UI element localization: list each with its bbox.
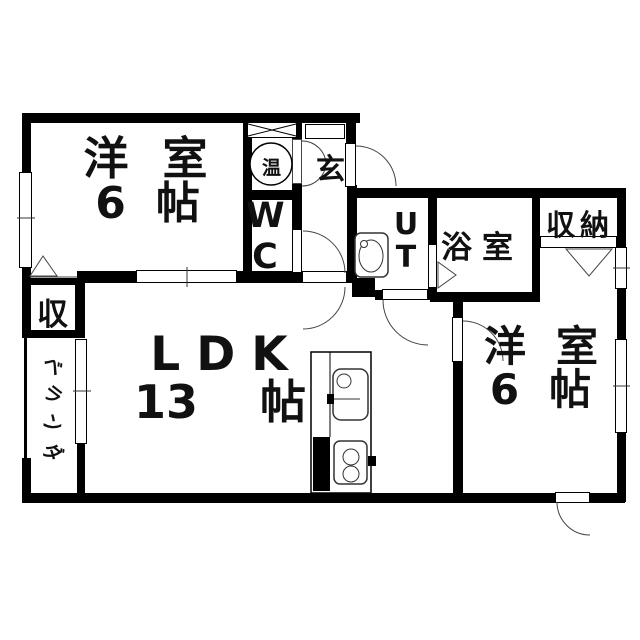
wall-top — [22, 113, 360, 123]
closet-right-door-icon — [566, 249, 612, 276]
door-bedroom2-bottom-panel — [555, 492, 590, 503]
wall-bath-closet-divider — [532, 188, 540, 302]
closet-right-label: 収納 — [546, 202, 614, 244]
closet-left-label: 収 — [37, 289, 68, 334]
kitchen-stove-icon — [334, 441, 367, 484]
wall-veranda-right — [77, 443, 85, 502]
wall-bedroom2-top — [430, 292, 540, 302]
door-wc-panel — [292, 229, 302, 273]
wc-door-arc-icon — [303, 231, 345, 273]
wall-closet-left-top — [30, 278, 77, 285]
bathroom-label: 浴室 — [441, 222, 523, 267]
bedroom-left-label: 洋室 6帖 — [45, 136, 250, 227]
ldk-label: LDK 13帖 — [110, 331, 330, 426]
shoe-cabinet — [247, 122, 297, 138]
sliding-door-bedroom1-ldk — [136, 270, 237, 283]
wall-bottom — [22, 493, 625, 503]
entrance-label: 玄 — [316, 146, 345, 188]
veranda-railing — [24, 336, 27, 460]
door-hall-ldk-panel — [302, 271, 347, 283]
door-ut-panel — [382, 289, 428, 300]
door-entrance-panel — [345, 143, 356, 187]
hall-door-arc-icon — [303, 287, 345, 329]
veranda-label: ベランダ — [39, 352, 65, 468]
washbasin-icon — [355, 233, 388, 277]
entrance-cabinet — [305, 124, 345, 139]
entrance-door-arc-icon — [356, 146, 396, 186]
closet-left-door-icon — [30, 256, 57, 276]
wall-entrance-right-upper — [346, 113, 356, 144]
water-heater-label: 温 — [262, 153, 281, 180]
sliding-window-veranda — [75, 339, 87, 444]
wall-block-hall-corner — [352, 278, 375, 297]
wall-left-mid — [22, 266, 31, 338]
window-bedroom1-left — [19, 172, 32, 268]
wall-step-top-right — [347, 188, 625, 198]
window-right-upper — [615, 247, 627, 289]
ut-door-arc-icon — [383, 300, 428, 345]
wall-closet-left-right — [75, 278, 85, 338]
door-bathroom-opening — [428, 244, 437, 288]
bedroom-right-label: 洋室 6帖 — [458, 326, 623, 412]
bedroom2-outdoor-door-arc-icon — [557, 502, 590, 535]
kitchen-wall-stub — [313, 437, 330, 491]
wall-bedroom1-bottom-left — [77, 271, 137, 283]
ut-label: UT — [390, 208, 422, 274]
floorplan-symbols — [0, 0, 640, 640]
door-water-heater-opening — [292, 139, 302, 184]
wc-label: WC — [246, 196, 284, 278]
kitchen-sink-icon — [333, 369, 368, 420]
wall-hall-right — [347, 185, 357, 283]
wall-left-upper — [22, 113, 31, 175]
floorplan: 洋室 6帖 LDK 13帖 洋室 6帖 浴室 収納 UT WC 玄 温 収 ベラ… — [0, 0, 640, 640]
